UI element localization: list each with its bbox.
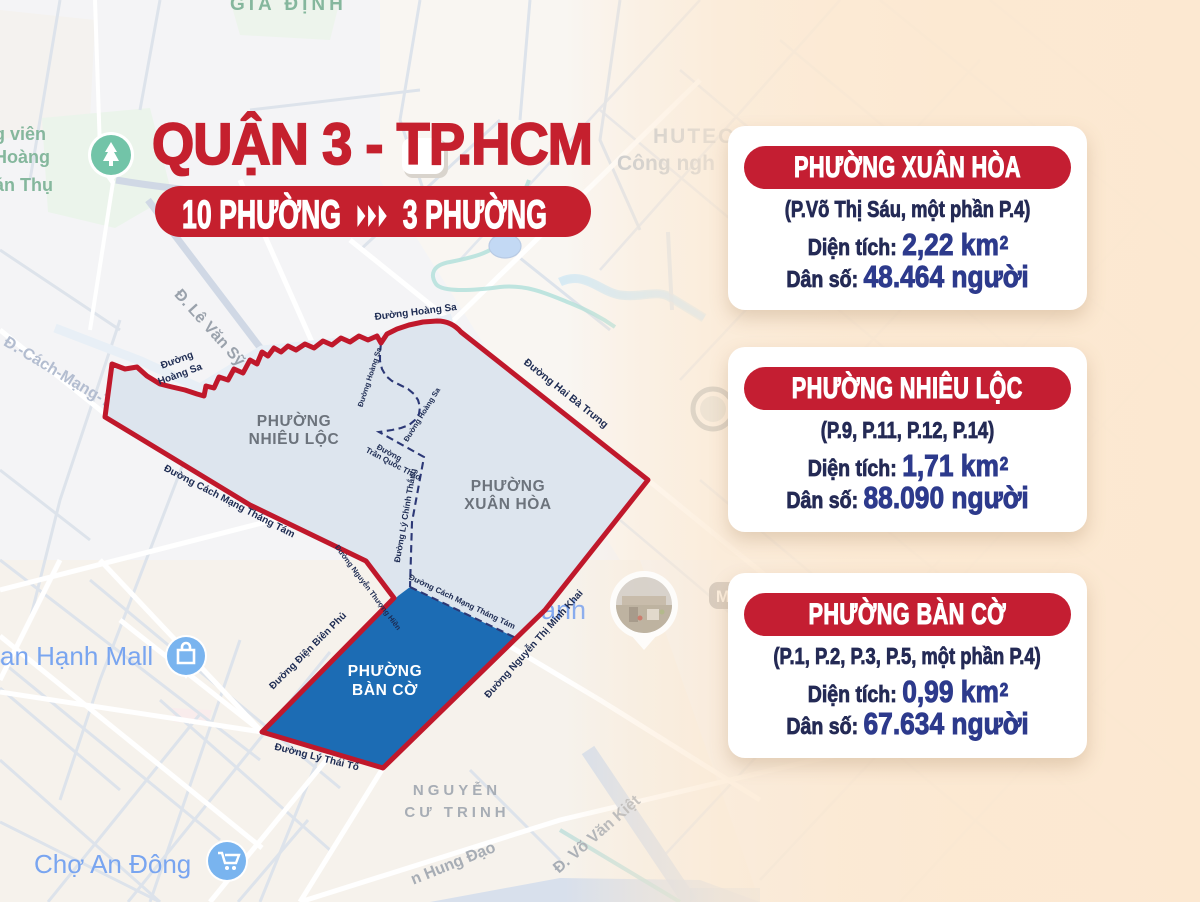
svg-text:NHIÊU LỘC: NHIÊU LỘC xyxy=(249,430,340,448)
svg-text:XUÂN HÒA: XUÂN HÒA xyxy=(464,495,551,513)
svg-text:BÀN CỜ: BÀN CỜ xyxy=(352,681,418,699)
svg-text:PHƯỜNG: PHƯỜNG xyxy=(257,412,331,430)
svg-text:PHƯỜNG: PHƯỜNG xyxy=(348,662,422,680)
svg-text:PHƯỜNG: PHƯỜNG xyxy=(471,477,545,495)
